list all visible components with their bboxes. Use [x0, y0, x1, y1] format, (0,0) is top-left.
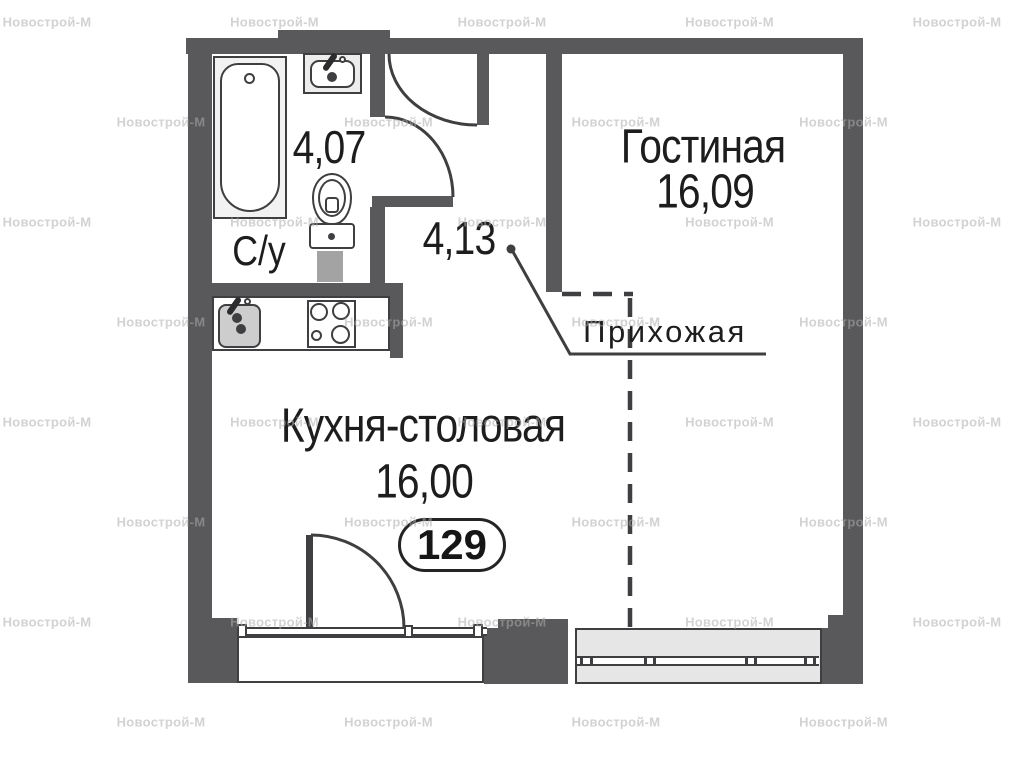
stove-burner	[332, 302, 350, 320]
wall-bathroom-right-upper	[370, 54, 385, 117]
wall-bottom-right-chunk	[822, 628, 843, 684]
kitchen-window-threshold	[237, 627, 487, 636]
living-window-mullion	[653, 656, 656, 666]
bathroom-door-arc	[385, 117, 453, 197]
watermark-text: Новострой-М	[344, 715, 433, 730]
room-label-bathroom: С/у	[232, 227, 286, 275]
bathroom-door-leaf	[372, 196, 453, 207]
watermark-text: Новострой-М	[3, 15, 92, 30]
kitchen-window-jamb-mid	[404, 625, 413, 638]
area-label-bathroom: 4,07	[293, 120, 366, 174]
living-window	[575, 628, 822, 684]
entrance-door-leaf	[477, 53, 489, 125]
wall-top-raised	[278, 30, 390, 54]
living-window-mullion	[804, 656, 807, 666]
watermark-text: Новострой-М	[799, 715, 888, 730]
watermark-text: Новострой-М	[3, 615, 92, 630]
wall-right	[843, 38, 863, 684]
wall-hallway-stub	[390, 296, 403, 358]
watermark-text: Новострой-М	[117, 715, 206, 730]
floor-plan-canvas: Гостиная 16,09 Кухня-столовая 16,00 4,07…	[0, 0, 1024, 768]
living-window-mullion	[644, 656, 647, 666]
bathtub-basin	[220, 63, 280, 212]
area-label-kitchen: 16,00	[375, 455, 473, 510]
faucet-handle-icon	[339, 56, 346, 63]
wall-bottom-left-chunk	[210, 618, 237, 683]
watermark-text: Новострой-М	[685, 15, 774, 30]
wall-bottom-mid-chunk-step	[484, 628, 498, 684]
stove-burner	[311, 330, 322, 341]
watermark-text: Новострой-М	[913, 215, 1002, 230]
living-window-band	[577, 656, 819, 666]
watermark-text: Новострой-М	[685, 415, 774, 430]
entrance-door-arc	[389, 54, 477, 125]
kitchen-window-jamb-left	[237, 624, 247, 638]
kitchen-balcony-box	[237, 636, 484, 683]
bathtub-drain	[244, 73, 255, 84]
watermark-text: Новострой-М	[913, 615, 1002, 630]
room-label-kitchen: Кухня-столовая	[281, 399, 565, 454]
hallway-leader-dot	[507, 245, 516, 254]
wall-right-step	[828, 615, 863, 629]
watermark-text: Новострой-М	[3, 215, 92, 230]
wall-bathroom-bottom	[188, 283, 403, 296]
wall-bathroom-right-lower	[370, 207, 385, 283]
faucet-handle-icon	[244, 298, 251, 305]
balcony-door-arc	[311, 535, 404, 628]
wall-left	[188, 38, 212, 683]
stove-burner	[310, 303, 328, 321]
kitchen-sink-drain	[236, 324, 246, 334]
living-window-mullion	[813, 656, 816, 666]
area-label-hallway: 4,13	[423, 211, 496, 265]
watermark-text: Новострой-М	[913, 15, 1002, 30]
faucet-icon	[232, 313, 242, 323]
kitchen-window-jamb-right	[473, 624, 483, 638]
faucet-icon	[327, 72, 337, 82]
watermark-text: Новострой-М	[913, 415, 1002, 430]
watermark-text: Новострой-М	[572, 715, 661, 730]
toilet-pedestal	[317, 251, 343, 282]
toilet-drain	[325, 197, 339, 213]
living-window-mullion	[590, 656, 593, 666]
wall-hallway-living-divider	[546, 54, 562, 292]
watermark-text: Новострой-М	[230, 15, 319, 30]
apartment-number-badge: 129	[398, 518, 506, 572]
stove-burner	[331, 325, 350, 344]
room-label-hallway: Прихожая	[583, 314, 747, 350]
toilet-tank-button	[328, 233, 335, 240]
watermark-text: Новострой-М	[572, 515, 661, 530]
living-window-mullion	[580, 656, 583, 666]
area-label-living: 16,09	[656, 165, 754, 220]
watermark-text: Новострой-М	[458, 15, 547, 30]
watermark-text: Новострой-М	[3, 415, 92, 430]
balcony-door-leaf	[306, 535, 313, 628]
wall-bottom-mid-chunk	[498, 619, 568, 684]
living-window-mullion	[745, 656, 748, 666]
living-window-mullion	[754, 656, 757, 666]
